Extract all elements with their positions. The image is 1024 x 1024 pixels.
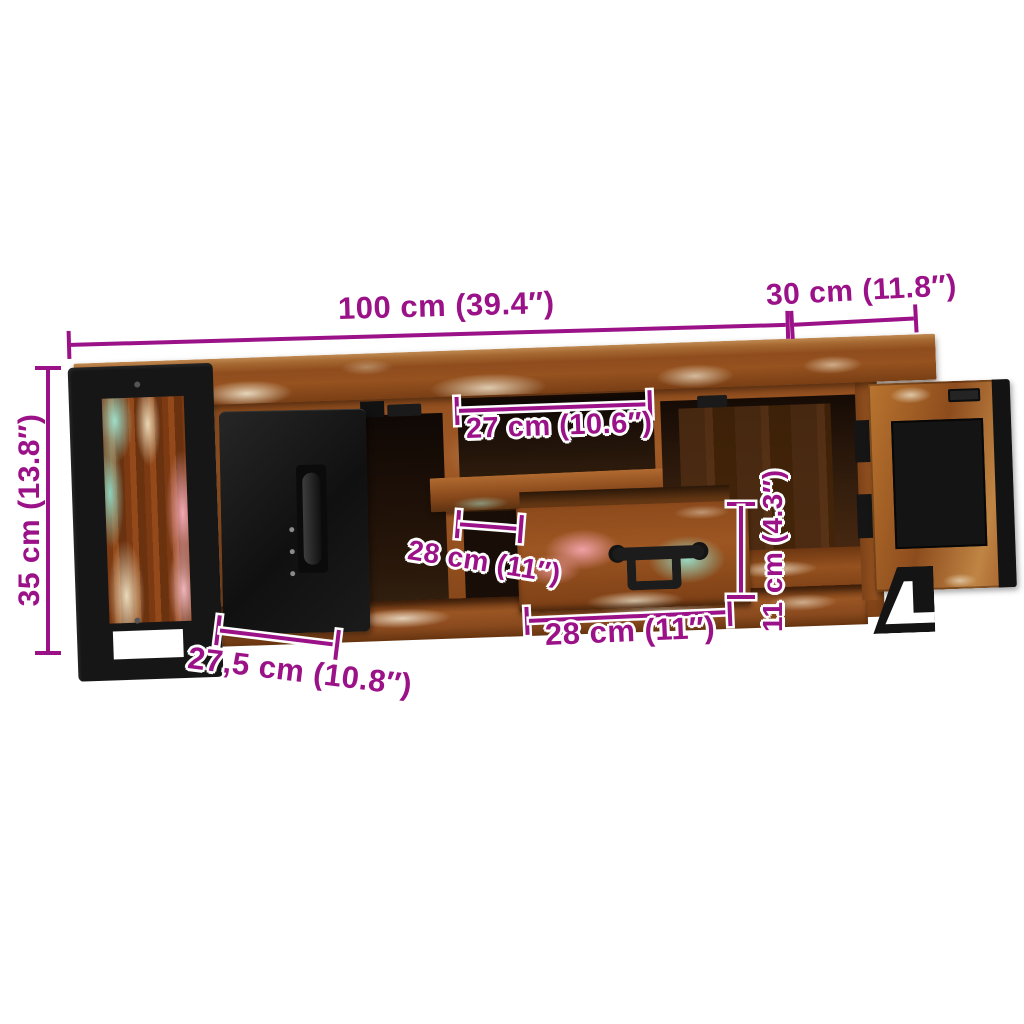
dim-label-overall-height: 35 cm (13.8″) <box>13 410 43 610</box>
dim-line-compartment-depth <box>455 510 524 543</box>
leg-opening <box>113 629 184 659</box>
door-handle-bar <box>302 473 322 565</box>
right-door-edge <box>992 379 1017 588</box>
right-metal-leg <box>871 566 935 634</box>
hinge-icon <box>387 404 421 417</box>
line <box>460 522 519 531</box>
right-door-open <box>868 379 1017 592</box>
dim-label-drawer-height: 11 cm (4.3″) <box>757 482 785 632</box>
reclaimed-wood-side-panel <box>102 396 192 624</box>
screw-icon <box>134 618 140 624</box>
tv-stand-illustration <box>65 319 976 695</box>
dim-label-drawer-width: 28 cm (11″) <box>544 610 716 653</box>
line <box>739 506 743 595</box>
screw-icon <box>134 381 140 387</box>
door-latch-icon <box>948 388 980 402</box>
dim-label-compartment-width: 27 cm (10.6″) <box>465 407 652 446</box>
right-door-inner-panel <box>891 418 987 549</box>
drawer-handle <box>612 540 706 591</box>
product-dimension-diagram: 100 cm (39.4″) 30 cm (11.8″) 35 cm (13.8… <box>0 0 1024 1024</box>
screw-icon <box>290 549 295 554</box>
left-door-open <box>219 409 371 635</box>
line <box>220 629 336 647</box>
screw-icon <box>289 527 294 532</box>
line <box>794 317 914 327</box>
dim-line-drawer-height <box>727 502 755 599</box>
dim-label-overall-width: 100 cm (39.4″) <box>337 285 555 327</box>
open-drawer <box>515 484 751 612</box>
dim-label-overall-depth: 30 cm (11.8″) <box>765 269 958 313</box>
tick <box>727 595 755 599</box>
handle-bail <box>627 555 682 591</box>
tick <box>913 304 918 332</box>
left-metal-side-frame <box>68 363 224 682</box>
screw-icon <box>290 571 295 576</box>
hinge-icon <box>697 395 727 408</box>
left-compartment-interior <box>355 413 449 612</box>
line <box>46 370 50 651</box>
tick <box>35 651 61 655</box>
